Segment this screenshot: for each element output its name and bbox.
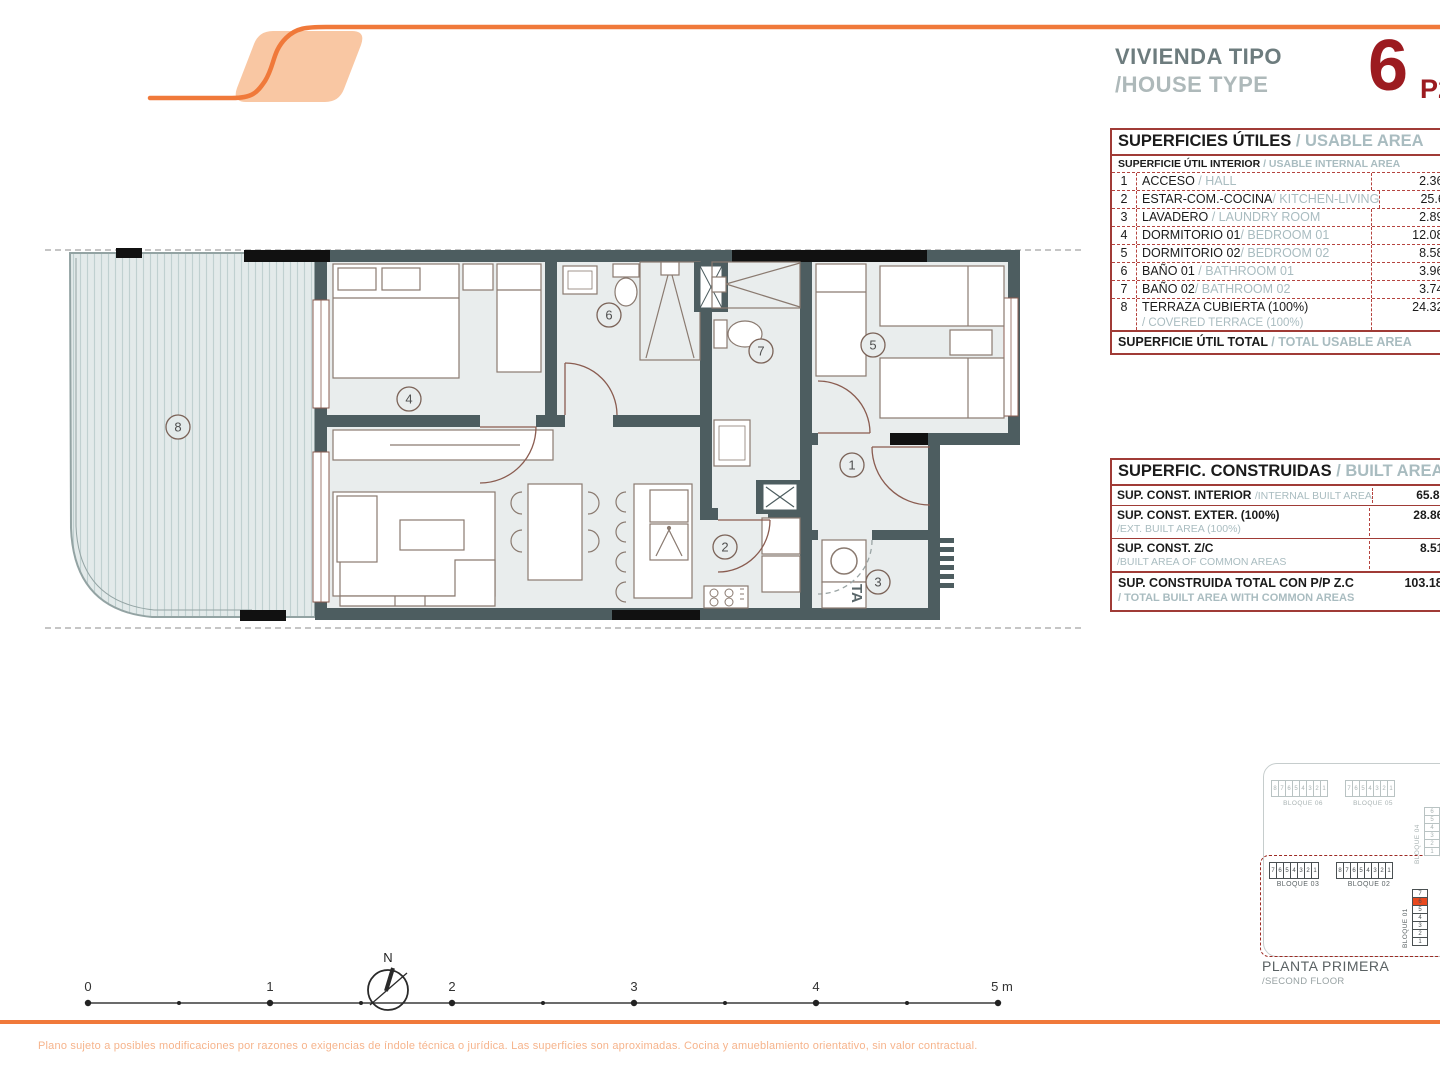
toilet bbox=[613, 264, 639, 277]
built-total-row: SUP. CONSTRUIDA TOTAL CON P/P Z.C/ TOTAL… bbox=[1110, 571, 1440, 612]
table-row: 6 BAÑO 01 / BATHROOM 01 3.96m² bbox=[1112, 262, 1440, 280]
floor-plan: TA 1 2 3 4 5 6 7 8 bbox=[0, 0, 1120, 700]
block-05-label: BLOQUE 05 bbox=[1342, 800, 1404, 807]
scale-label: 4 bbox=[812, 979, 819, 994]
block-03-cells: 7654321 bbox=[1270, 862, 1319, 879]
room-number-hall: 1 bbox=[840, 453, 864, 477]
island-sink bbox=[650, 490, 688, 522]
svg-text:1: 1 bbox=[848, 458, 855, 473]
room-number-bath02: 7 bbox=[749, 339, 773, 363]
usable-subheader: SUPERFICIE ÚTIL INTERIOR / USABLE INTERN… bbox=[1112, 156, 1440, 172]
table-row: 1 ACCESO / HALL 2.36m² bbox=[1112, 172, 1440, 190]
block-06-label: BLOQUE 06 bbox=[1268, 800, 1338, 807]
north-label: N bbox=[383, 950, 392, 965]
room-number-laundry: 3 bbox=[866, 570, 890, 594]
table-row: 4 DORMITORIO 01/ BEDROOM 01 12.08m² bbox=[1112, 226, 1440, 244]
built-title-en: / BUILT AREA bbox=[1332, 462, 1440, 480]
svg-text:3: 3 bbox=[874, 575, 881, 590]
house-type-title-es: VIVIENDA TIPO bbox=[1115, 44, 1282, 70]
north-arrow-icon: N bbox=[368, 950, 408, 1010]
block-01-cells: 7654321 bbox=[1412, 890, 1428, 946]
scale-bar: 0 1 2 3 4 5 m bbox=[84, 979, 1012, 1006]
scale-label: 2 bbox=[448, 979, 455, 994]
table-row: SUP. CONST. INTERIOR /INTERNAL BUILT ARE… bbox=[1112, 486, 1440, 505]
house-floor-code: P2 bbox=[1420, 74, 1440, 105]
room-number-bedroom02: 5 bbox=[861, 333, 885, 357]
usable-total-row: SUPERFICIE ÚTIL TOTAL / TOTAL USABLE ARE… bbox=[1110, 330, 1440, 355]
dining-table bbox=[528, 484, 582, 580]
built-table-header: SUPERFIC. CONSTRUIDAS / BUILT AREA bbox=[1110, 458, 1440, 486]
table-row: SUP. CONST. EXTER. (100%)/EXT. BUILT ARE… bbox=[1112, 505, 1440, 538]
block-04-label: BLOQUE 04 bbox=[1414, 824, 1421, 864]
table-row: SUP. CONST. Z/C/BUILT AREA OF COMMON ARE… bbox=[1112, 538, 1440, 571]
table-row: 7 BAÑO 02/ BATHROOM 02 3.74m² bbox=[1112, 280, 1440, 298]
bed-single bbox=[880, 358, 1004, 418]
nightstand bbox=[463, 264, 493, 290]
svg-text:7: 7 bbox=[757, 344, 764, 359]
usable-area-table: SUPERFICIES ÚTILES / USABLE AREA SUPERFI… bbox=[1110, 128, 1440, 355]
room-number-kitchen-living: 2 bbox=[713, 535, 737, 559]
scale-and-compass: 0 1 2 3 4 5 m N bbox=[0, 940, 1440, 1020]
footer-rule bbox=[0, 1020, 1440, 1024]
house-type-number: 6 bbox=[1368, 30, 1408, 102]
svg-text:8: 8 bbox=[174, 420, 181, 435]
disclaimer-text: Plano sujeto a posibles modificaciones p… bbox=[38, 1040, 978, 1052]
block-02-label: BLOQUE 02 bbox=[1335, 881, 1403, 888]
wardrobe bbox=[816, 264, 866, 376]
entrance-threshold bbox=[890, 433, 928, 445]
table-row: 3 LAVADERO / LAUNDRY ROOM 2.89m² bbox=[1112, 208, 1440, 226]
usable-table-header: SUPERFICIES ÚTILES / USABLE AREA bbox=[1110, 128, 1440, 156]
table-row: 8 TERRAZA CUBIERTA (100%)/ COVERED TERRA… bbox=[1112, 298, 1440, 330]
block-02-cells: 87654321 bbox=[1337, 862, 1393, 879]
coffee-table bbox=[400, 520, 464, 550]
sofa-chaise bbox=[337, 496, 377, 562]
toilet bbox=[714, 320, 727, 348]
bed-double bbox=[333, 264, 541, 378]
built-area-table: SUPERFIC. CONSTRUIDAS / BUILT AREA SUP. … bbox=[1110, 458, 1440, 612]
bed-single bbox=[880, 266, 1004, 326]
block-06-cells: 87654321 bbox=[1272, 780, 1328, 797]
house-type-title-en: /HOUSE TYPE bbox=[1115, 72, 1268, 98]
svg-text:6: 6 bbox=[605, 308, 612, 323]
washer bbox=[822, 540, 866, 582]
scale-label: 1 bbox=[266, 979, 273, 994]
block-03-label: BLOQUE 03 bbox=[1266, 881, 1330, 888]
terrace bbox=[70, 248, 315, 621]
table-row: 5 DORMITORIO 02/ BEDROOM 02 8.58m² bbox=[1112, 244, 1440, 262]
built-title-es: SUPERFIC. CONSTRUIDAS bbox=[1118, 462, 1332, 480]
usable-title-en: / USABLE AREA bbox=[1291, 132, 1423, 150]
room-number-bath01: 6 bbox=[597, 303, 621, 327]
svg-text:2: 2 bbox=[721, 540, 728, 555]
plan-sheet: { "header": { "title_es": "VIVIENDA TIPO… bbox=[0, 0, 1440, 1080]
scale-label: 5 m bbox=[991, 979, 1013, 994]
wardrobe bbox=[497, 264, 541, 372]
table-row: 2 ESTAR-COM.-COCINA/ KITCHEN-LIVING 25.6… bbox=[1112, 190, 1440, 208]
scale-label: 0 bbox=[84, 979, 91, 994]
usable-title-es: SUPERFICIES ÚTILES bbox=[1118, 132, 1291, 150]
room-number-bedroom01: 4 bbox=[397, 387, 421, 411]
room-number-terrace: 8 bbox=[166, 415, 190, 439]
svg-text:5: 5 bbox=[869, 338, 876, 353]
nightstand bbox=[950, 330, 992, 355]
laundry-ta-label: TA bbox=[848, 584, 865, 603]
svg-text:4: 4 bbox=[405, 392, 412, 407]
scale-label: 3 bbox=[630, 979, 637, 994]
block-04-cells: 654321 bbox=[1424, 808, 1440, 856]
block-05-cells: 7654321 bbox=[1346, 780, 1395, 797]
